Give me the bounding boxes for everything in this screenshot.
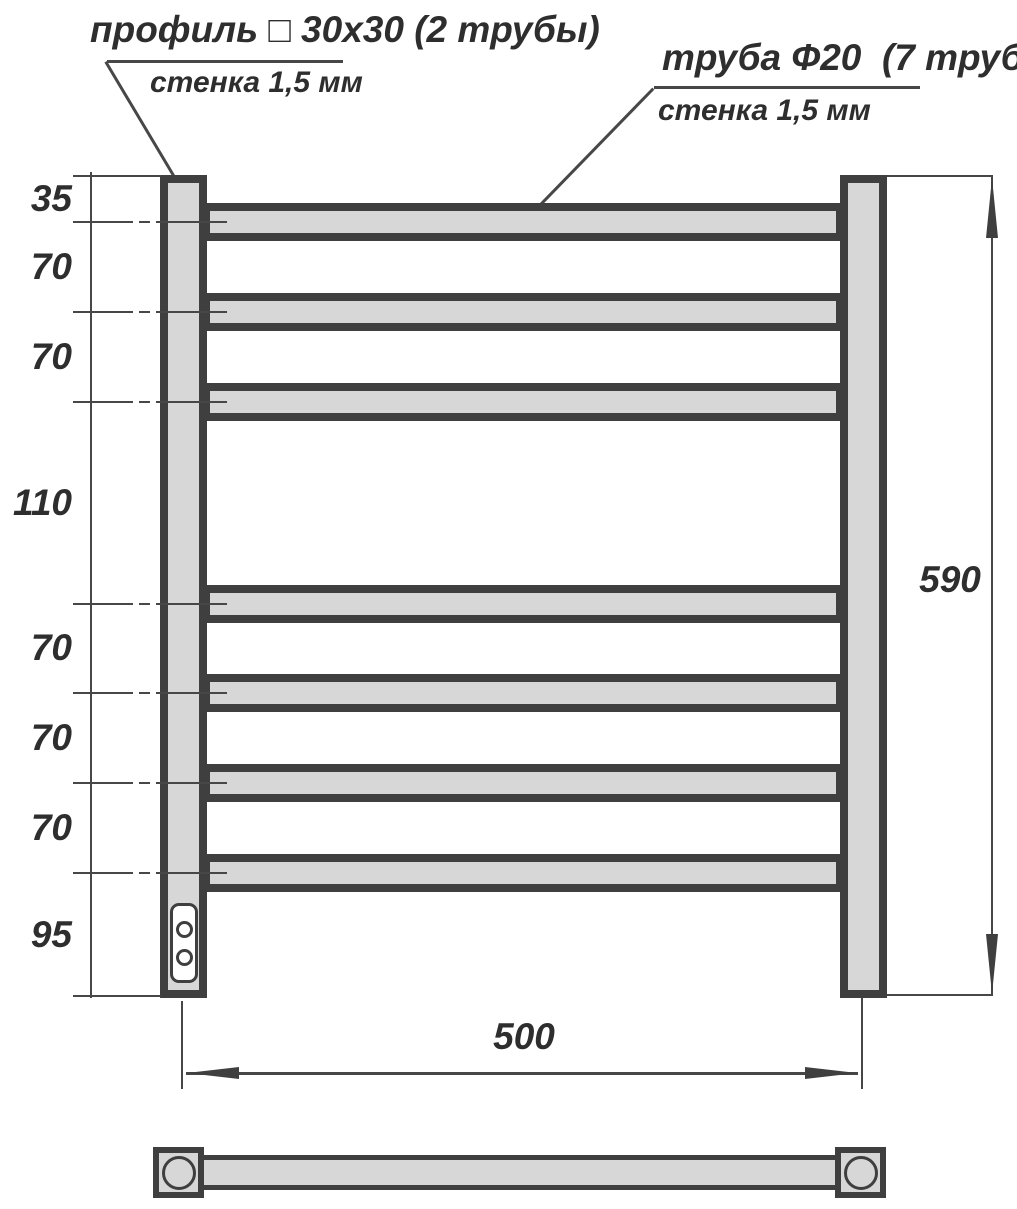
dim-70-3: 70 — [0, 626, 72, 670]
tube-leader-line — [540, 88, 654, 206]
height-ext-bottom — [887, 994, 993, 996]
centerline-6-dash — [139, 782, 150, 784]
plan-view-right-profile — [835, 1147, 886, 1198]
towel-rail-drawing: профиль □ 30х30 (2 трубы) стенка 1,5 мм … — [0, 0, 1017, 1209]
plan-view-left-profile — [153, 1147, 204, 1198]
centerline-2-dash — [139, 311, 150, 313]
centerline-5-dash — [139, 692, 150, 694]
dim-70-2: 70 — [0, 335, 72, 379]
centerline-3-dash — [139, 401, 150, 403]
cable-gland — [170, 903, 198, 983]
centerline-1-tail — [156, 221, 227, 223]
centerline-5-tail — [156, 692, 227, 694]
dim-35: 35 — [0, 177, 72, 221]
tick-bottom — [73, 995, 161, 997]
profile-callout-underline — [107, 60, 343, 63]
tube-callout-title: труба Ф20 (7 труб) — [662, 38, 1017, 78]
plan-left-pipe-section — [162, 1156, 196, 1190]
centerline-3-tail — [156, 401, 227, 403]
tube-3 — [202, 383, 844, 421]
height-arrow-up — [986, 178, 998, 238]
width-arrow-left — [187, 1067, 239, 1079]
width-dimension-line — [186, 1072, 858, 1075]
tube-1 — [202, 203, 844, 241]
gland-hole-bottom — [176, 949, 193, 966]
tube-wall-label: стенка 1,5 мм — [658, 94, 871, 128]
centerline-7-tail — [156, 872, 227, 874]
dim-500: 500 — [474, 1015, 574, 1059]
width-ext-right — [861, 998, 863, 1089]
tube-4 — [202, 585, 844, 623]
centerline-7-dash — [139, 872, 150, 874]
height-ext-top — [887, 175, 993, 177]
centerline-4-dash — [139, 603, 150, 605]
tube-5 — [202, 674, 844, 712]
centerline-1 — [73, 221, 133, 223]
tube-7 — [202, 854, 844, 892]
dim-590: 590 — [900, 558, 1000, 602]
dim-70-1: 70 — [0, 245, 72, 289]
tube-callout-underline — [654, 86, 920, 89]
tube-6 — [202, 764, 844, 802]
centerline-2 — [73, 311, 133, 313]
left-rail-profile — [160, 175, 207, 998]
centerline-5 — [73, 692, 133, 694]
width-arrow-right — [805, 1067, 857, 1079]
profile-callout-title: профиль □ 30х30 (2 трубы) — [90, 10, 600, 50]
left-dimension-line — [90, 172, 92, 998]
width-ext-left — [181, 1001, 183, 1089]
dim-70-5: 70 — [0, 806, 72, 850]
profile-wall-label: стенка 1,5 мм — [150, 66, 363, 100]
dim-95: 95 — [0, 913, 72, 957]
centerline-4-tail — [156, 603, 227, 605]
centerline-6 — [73, 782, 133, 784]
plan-right-pipe-section — [844, 1156, 878, 1190]
dim-70-4: 70 — [0, 716, 72, 760]
right-rail-profile — [840, 175, 887, 998]
centerline-1-dash — [139, 221, 150, 223]
centerline-2-tail — [156, 311, 227, 313]
tube-2 — [202, 293, 844, 331]
gland-hole-top — [176, 921, 193, 938]
height-arrow-down — [986, 934, 998, 994]
centerline-6-tail — [156, 782, 227, 784]
centerline-7 — [73, 872, 133, 874]
tick-top — [73, 175, 161, 177]
plan-view-tube — [198, 1155, 842, 1190]
centerline-3 — [73, 401, 133, 403]
dim-110: 110 — [0, 481, 72, 525]
centerline-4 — [73, 603, 133, 605]
